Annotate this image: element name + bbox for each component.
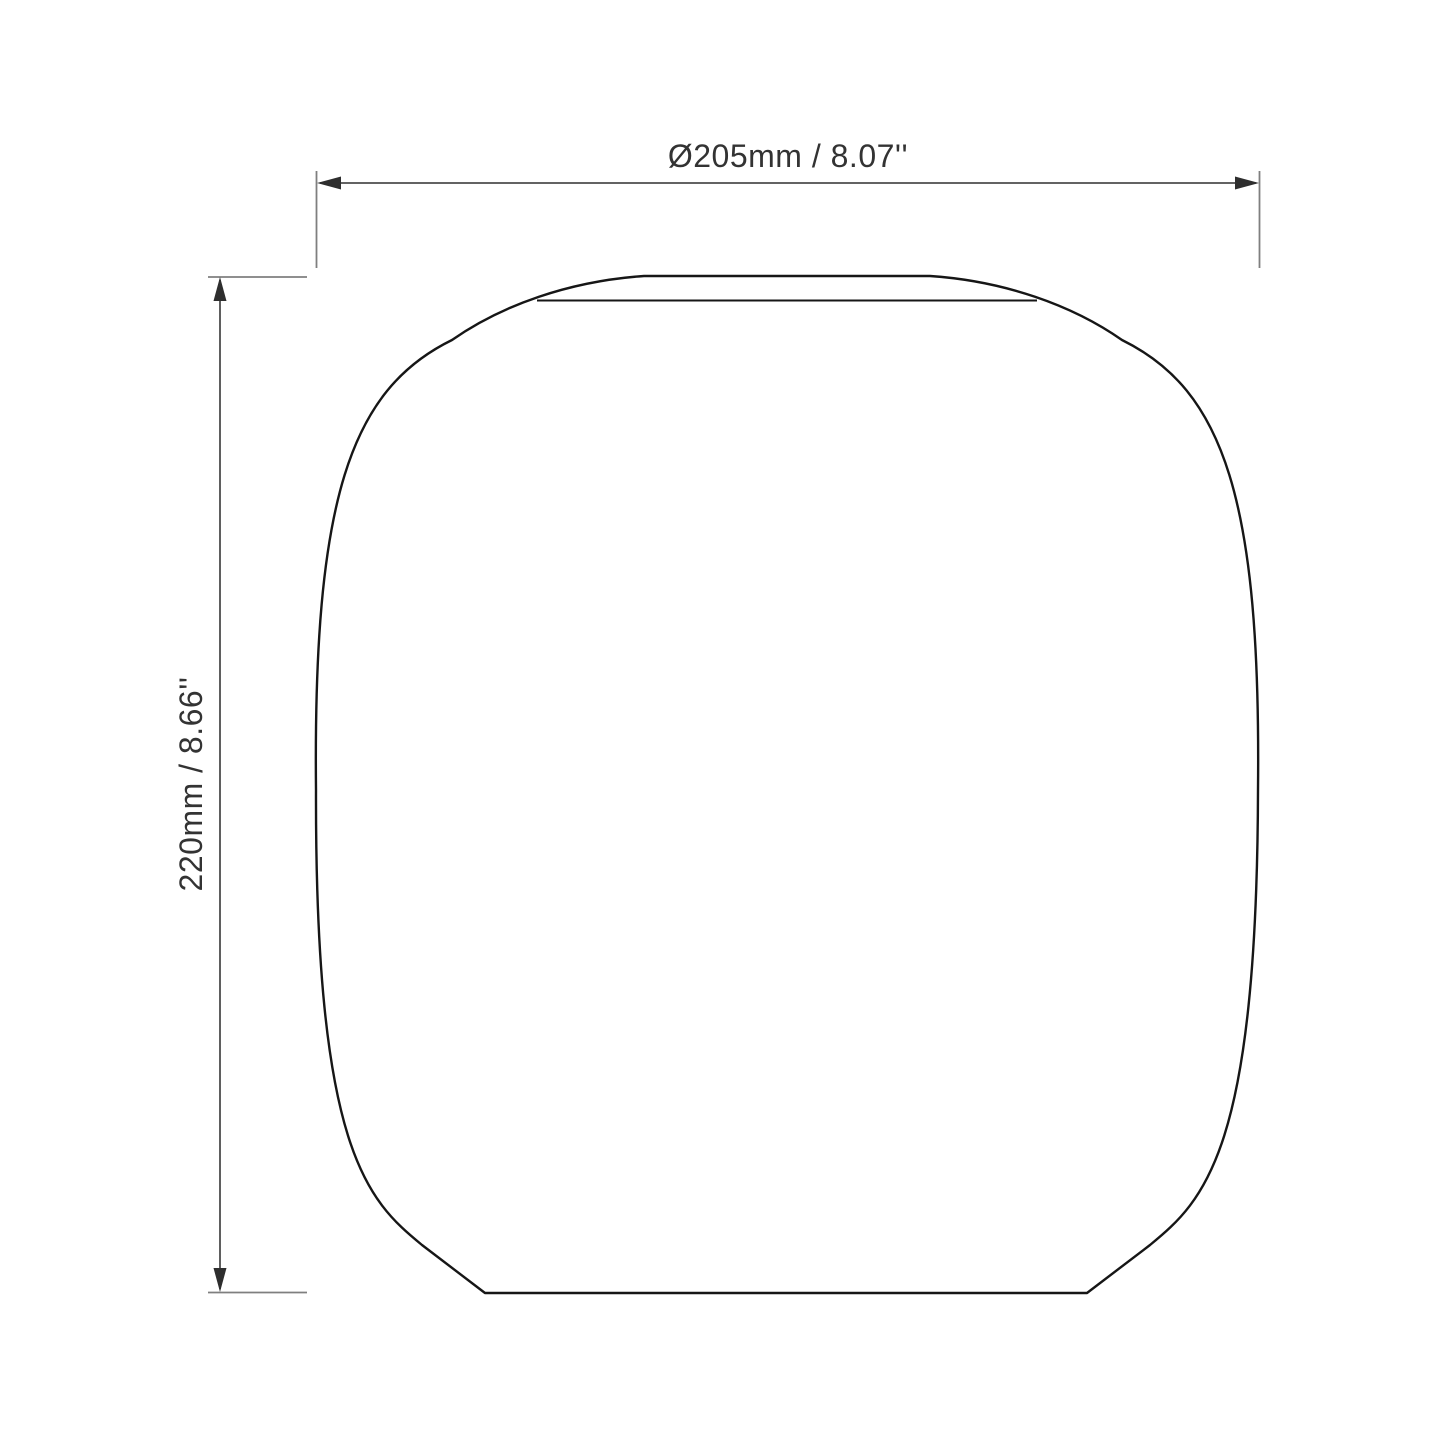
width-dimension-label: Ø205mm / 8.07'' [668,138,908,174]
height-arrowhead-top [214,277,227,301]
height-dimension: 220mm / 8.66'' [173,277,307,1293]
height-arrowhead-bottom [214,1268,227,1292]
width-arrowhead-right [1235,177,1259,190]
width-dimension: Ø205mm / 8.07'' [317,138,1260,268]
shade-outline [316,276,1258,1293]
shade-shape [316,276,1258,1293]
drawing-canvas: Ø205mm / 8.07'' 220mm / 8.66'' [0,0,1445,1445]
width-arrowhead-left [317,177,341,190]
dimension-drawing-svg: Ø205mm / 8.07'' 220mm / 8.66'' [0,0,1445,1445]
height-dimension-label: 220mm / 8.66'' [173,677,209,892]
